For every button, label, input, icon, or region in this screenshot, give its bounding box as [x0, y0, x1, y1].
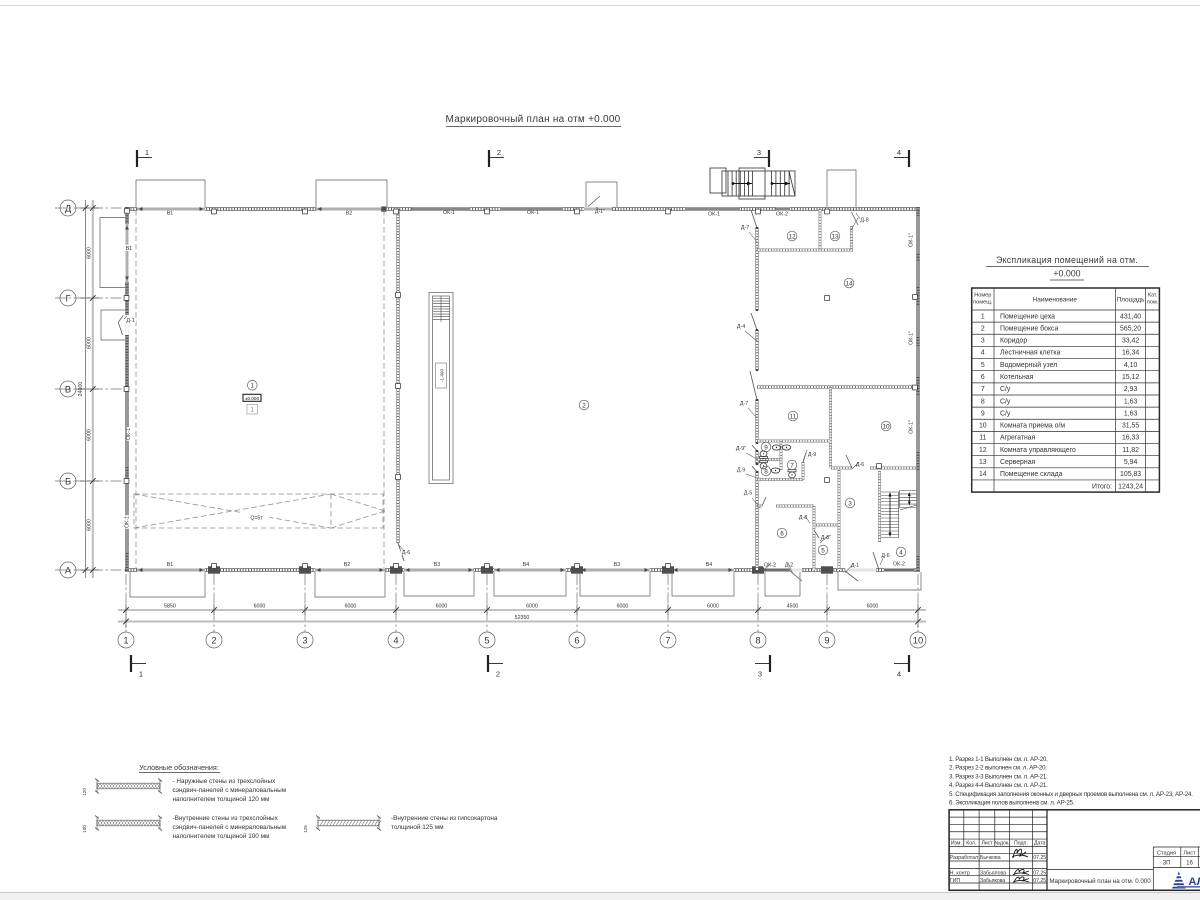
- svg-text:125: 125: [303, 825, 308, 833]
- svg-text:07.25: 07.25: [1033, 878, 1046, 884]
- svg-text:4: 4: [897, 148, 901, 157]
- svg-text:Лист: Лист: [981, 841, 993, 847]
- svg-text:ОК-1: ОК-1: [126, 428, 132, 440]
- svg-text:Серверная: Серверная: [1000, 459, 1036, 466]
- svg-text:Помещение бокса: Помещение бокса: [1000, 324, 1058, 332]
- svg-text:2: 2: [497, 148, 501, 157]
- svg-text:14: 14: [979, 471, 987, 478]
- svg-text:7: 7: [665, 635, 670, 645]
- svg-text:В2: В2: [344, 562, 351, 568]
- svg-text:1: 1: [123, 635, 128, 645]
- svg-text:9: 9: [981, 410, 985, 417]
- svg-text:1: 1: [145, 148, 149, 157]
- svg-text:11: 11: [979, 435, 986, 442]
- svg-text:Д-6: Д-6: [881, 553, 889, 559]
- svg-text:2: 2: [496, 670, 500, 679]
- svg-text:10: 10: [979, 423, 987, 430]
- svg-text:9: 9: [824, 635, 829, 645]
- svg-text:Д-6: Д-6: [402, 550, 410, 556]
- svg-text:5: 5: [484, 635, 489, 645]
- svg-text:Д-1: Д-1: [851, 563, 859, 569]
- svg-text:В3: В3: [434, 562, 441, 568]
- svg-text:В4: В4: [523, 562, 530, 568]
- svg-text:ОК-1: ОК-1: [125, 516, 131, 528]
- svg-text:6000: 6000: [436, 604, 448, 610]
- svg-text:Условные обозначения:: Условные обозначения:: [139, 763, 219, 772]
- svg-text:120: 120: [82, 788, 87, 796]
- svg-text:52350: 52350: [515, 615, 530, 621]
- svg-text:Кат.: Кат.: [1148, 293, 1157, 299]
- svg-text:В1: В1: [167, 562, 174, 568]
- svg-text:Д-5: Д-5: [744, 491, 752, 497]
- svg-text:3. Разрез 3-3 Выполнен см. л.: 3. Разрез 3-3 Выполнен см. л. АР-21.: [949, 773, 1048, 780]
- svg-text:Котельная: Котельная: [1000, 374, 1034, 381]
- svg-text:16: 16: [1186, 861, 1193, 867]
- svg-text:толщиной 125 мм: толщиной 125 мм: [391, 823, 443, 831]
- svg-text:07.25: 07.25: [1033, 855, 1046, 861]
- svg-text:ГИП: ГИП: [950, 878, 961, 884]
- svg-text:-Внутренние стены из гипсокарт: -Внутренние стены из гипсокартона: [391, 815, 498, 822]
- svg-text:Б: Б: [65, 476, 71, 486]
- svg-text:ОК-1: ОК-1: [708, 212, 720, 218]
- svg-text:помещ.: помещ.: [973, 300, 993, 306]
- svg-text:6000: 6000: [867, 604, 879, 610]
- svg-text:Комната управляющего: Комната управляющего: [1000, 447, 1076, 454]
- svg-text:8: 8: [981, 398, 985, 405]
- svg-text:Д-9: Д-9: [737, 468, 745, 474]
- svg-text:6: 6: [780, 530, 784, 537]
- svg-text:14: 14: [845, 280, 853, 287]
- svg-text:ОК-1": ОК-1": [909, 420, 915, 434]
- svg-text:5850: 5850: [164, 604, 176, 610]
- svg-text:ЗП: ЗП: [1163, 861, 1171, 867]
- svg-text:В: В: [65, 384, 71, 394]
- svg-text:2: 2: [981, 325, 985, 332]
- svg-text:В1: В1: [126, 246, 133, 252]
- svg-text:Д-7: Д-7: [741, 225, 749, 231]
- svg-text:6: 6: [574, 635, 579, 645]
- svg-text:Экспликация помещений на отм.: Экспликация помещений на отм.: [996, 255, 1138, 265]
- svg-text:6000: 6000: [254, 604, 266, 610]
- svg-text:9: 9: [764, 444, 768, 451]
- svg-text:8: 8: [755, 635, 760, 645]
- svg-text:ОК-1: ОК-1: [443, 210, 455, 216]
- svg-text:3: 3: [848, 500, 852, 507]
- svg-text:ОК-1": ОК-1": [909, 233, 915, 247]
- svg-text:С/у: С/у: [1000, 398, 1011, 405]
- svg-text:33,42: 33,42: [1122, 338, 1139, 345]
- svg-text:Д-8: Д-8: [860, 218, 868, 224]
- svg-text:Помещение склада: Помещение склада: [1000, 471, 1063, 478]
- svg-text:10: 10: [913, 635, 923, 645]
- svg-text:Разработал: Разработал: [950, 855, 978, 861]
- svg-text:Водомерный узел: Водомерный узел: [1000, 361, 1057, 369]
- svg-text:6000: 6000: [617, 604, 629, 610]
- svg-text:5: 5: [981, 362, 985, 369]
- svg-text:- Наружные стены из трехслойны: - Наружные стены из трехслойных: [173, 777, 277, 785]
- svg-text:3: 3: [758, 670, 762, 679]
- svg-text:6000: 6000: [526, 604, 538, 610]
- svg-text:Номер: Номер: [974, 293, 991, 299]
- svg-text:Д-8: Д-8: [799, 515, 807, 521]
- svg-text:6000: 6000: [707, 604, 719, 610]
- svg-text:С/у: С/у: [1000, 410, 1011, 417]
- svg-text:+0.000: +0.000: [1053, 269, 1080, 279]
- svg-text:Д-9: Д-9: [808, 452, 816, 458]
- svg-text:Г: Г: [65, 293, 70, 303]
- svg-text:Д-4: Д-4: [737, 324, 745, 330]
- svg-text:Изм.: Изм.: [951, 841, 962, 847]
- svg-text:5,94: 5,94: [1124, 459, 1138, 466]
- svg-text:пом.: пом.: [1147, 300, 1158, 306]
- svg-text:Н. контр: Н. контр: [950, 870, 970, 876]
- svg-text:11: 11: [790, 413, 797, 420]
- svg-text:ОК-1: ОК-1: [527, 210, 539, 216]
- svg-text:1: 1: [139, 670, 143, 679]
- svg-text:565,20: 565,20: [1120, 325, 1141, 332]
- svg-text:В1: В1: [167, 211, 174, 217]
- svg-text:4. Разрез 4-4 Выполнен см. л.: 4. Разрез 4-4 Выполнен см. л. АР-21.: [949, 782, 1048, 789]
- svg-text:31,55: 31,55: [1122, 423, 1139, 430]
- svg-text:4: 4: [981, 350, 985, 357]
- svg-text:13: 13: [979, 459, 987, 466]
- svg-text:1,63: 1,63: [1124, 398, 1138, 405]
- svg-text:6000: 6000: [87, 337, 93, 349]
- svg-text:ОК-2: ОК-2: [776, 212, 788, 218]
- svg-text:С/у: С/у: [1000, 386, 1011, 393]
- svg-text:Дата: Дата: [1034, 841, 1046, 847]
- svg-text:2,93: 2,93: [1124, 386, 1138, 393]
- svg-text:ОК-1": ОК-1": [909, 331, 915, 345]
- svg-text:07.25: 07.25: [1033, 870, 1046, 876]
- svg-text:6000: 6000: [87, 429, 93, 441]
- svg-text:7: 7: [790, 462, 794, 469]
- svg-text:Q=5т: Q=5т: [250, 516, 263, 522]
- svg-text:13: 13: [831, 233, 839, 240]
- svg-text:Лестничная клетка: Лестничная клетка: [1000, 350, 1061, 357]
- svg-text:7: 7: [981, 386, 985, 393]
- svg-text:15,12: 15,12: [1122, 374, 1139, 381]
- svg-text:11,82: 11,82: [1122, 447, 1139, 454]
- svg-text:№док.: №док.: [994, 841, 1009, 847]
- svg-text:Маркировочный план на отм. 0.0: Маркировочный план на отм. 0.000: [1049, 878, 1151, 885]
- svg-text:431,40: 431,40: [1120, 313, 1141, 320]
- svg-text:Д-6: Д-6: [856, 462, 864, 468]
- svg-text:В3: В3: [614, 562, 621, 568]
- svg-text:1: 1: [981, 313, 985, 320]
- svg-text:1,63: 1,63: [1124, 410, 1138, 417]
- svg-text:2. Разрез 2-2 выполнен см. л.: 2. Разрез 2-2 выполнен см. л. АР-20.: [949, 765, 1047, 772]
- svg-text:4: 4: [393, 635, 398, 645]
- svg-text:Комната приема о/м: Комната приема о/м: [1000, 423, 1065, 430]
- svg-text:2: 2: [582, 402, 586, 409]
- svg-text:4: 4: [897, 670, 901, 679]
- svg-text:сэндвич-панелей с минераловаль: сэндвич-панелей с минераловальным: [173, 823, 287, 831]
- svg-text:1. Разрез 1-1 Выполнен см. л.: 1. Разрез 1-1 Выполнен см. л. АР-20.: [949, 756, 1048, 763]
- svg-text:4,10: 4,10: [1124, 362, 1138, 369]
- svg-text:1243,24: 1243,24: [1118, 483, 1143, 490]
- svg-text:сэндвич-панелей с минераловаль: сэндвич-панелей с минераловальным: [173, 786, 287, 794]
- svg-text:Итого:: Итого:: [1092, 483, 1112, 490]
- svg-text:Д-7: Д-7: [740, 401, 748, 407]
- svg-text:Забьялова: Забьялова: [980, 870, 1006, 876]
- svg-text:3: 3: [757, 148, 761, 157]
- svg-text:6. Экспликация полов выполнена: 6. Экспликация полов выполнена см. л. АР…: [949, 800, 1075, 807]
- svg-text:Д: Д: [65, 203, 72, 213]
- svg-text:24000: 24000: [78, 382, 84, 397]
- svg-text:16,33: 16,33: [1122, 435, 1139, 442]
- svg-text:16,34: 16,34: [1122, 350, 1139, 357]
- svg-text:ОК-2: ОК-2: [764, 563, 776, 569]
- svg-text:±0.000: ±0.000: [245, 396, 259, 401]
- svg-text:6000: 6000: [87, 247, 93, 259]
- svg-text:Подп.: Подп.: [1014, 841, 1028, 847]
- svg-text:6000: 6000: [87, 519, 93, 531]
- svg-text:Забьякова: Забьякова: [980, 878, 1005, 884]
- svg-text:8: 8: [764, 468, 768, 475]
- svg-text:4500: 4500: [787, 604, 799, 610]
- svg-text:2: 2: [211, 635, 216, 645]
- svg-text:Д-1: Д-1: [126, 318, 134, 324]
- svg-text:3: 3: [981, 338, 985, 345]
- svg-text:5: 5: [821, 547, 825, 554]
- svg-text:-Внутренние стены из трехслойн: -Внутренние стены из трехслойных: [173, 814, 279, 822]
- svg-text:6: 6: [981, 374, 985, 381]
- svg-text:Наименование: Наименование: [1033, 297, 1078, 304]
- svg-text:3: 3: [302, 635, 307, 645]
- svg-text:ОК-2: ОК-2: [893, 562, 905, 568]
- svg-text:1: 1: [251, 383, 255, 390]
- svg-text:12: 12: [979, 447, 987, 454]
- svg-text:наполнителем толщиной 100 мм: наполнителем толщиной 100 мм: [173, 832, 270, 840]
- svg-text:Коридор: Коридор: [1000, 338, 1027, 345]
- svg-text:Площадь: Площадь: [1117, 297, 1145, 304]
- svg-text:Кол.: Кол.: [966, 841, 976, 847]
- svg-text:4: 4: [899, 549, 903, 556]
- svg-text:наполнителем толщиной 120 мм: наполнителем толщиной 120 мм: [173, 795, 270, 803]
- svg-text:Агрегатная: Агрегатная: [1000, 435, 1036, 442]
- svg-text:6000: 6000: [345, 604, 357, 610]
- svg-text:Бычкова: Бычкова: [980, 855, 1001, 861]
- svg-text:Маркировочный план на отм +0.0: Маркировочный план на отм +0.000: [446, 114, 621, 125]
- svg-text:Лист: Лист: [1183, 850, 1196, 856]
- svg-text:100: 100: [82, 825, 87, 833]
- svg-text:Помещение цеха: Помещение цеха: [1000, 313, 1055, 320]
- svg-text:Стадия: Стадия: [1157, 850, 1176, 856]
- svg-text:А: А: [65, 565, 72, 575]
- svg-text:105,83: 105,83: [1120, 471, 1141, 478]
- svg-text:5. Спецификация заполнения око: 5. Спецификация заполнения оконных и две…: [949, 791, 1193, 798]
- svg-text:В2: В2: [346, 211, 353, 217]
- svg-text:12: 12: [788, 233, 796, 240]
- svg-text:10: 10: [882, 423, 890, 430]
- svg-text:Д-9": Д-9": [736, 446, 746, 452]
- svg-text:В4: В4: [706, 562, 713, 568]
- svg-text:-1.400: -1.400: [440, 369, 445, 382]
